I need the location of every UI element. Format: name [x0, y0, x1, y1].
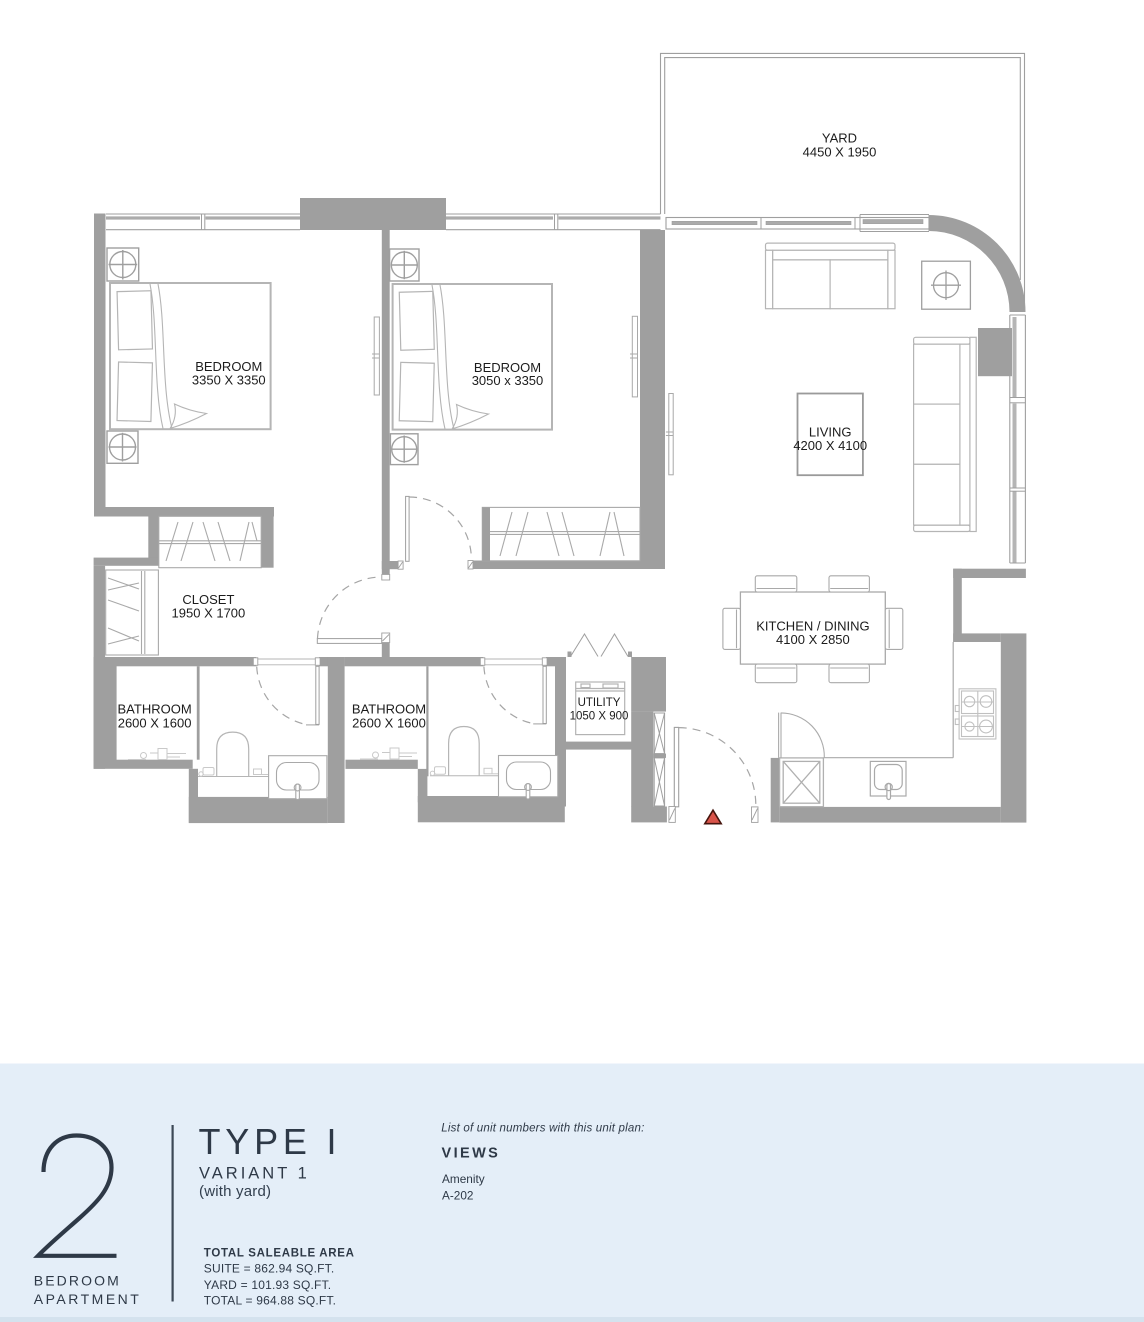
svg-text:1050 X 900: 1050 X 900 — [570, 711, 629, 723]
svg-text:TOTAL SALEABLE AREA: TOTAL SALEABLE AREA — [204, 1248, 355, 1260]
svg-text:3350 X 3350: 3350 X 3350 — [192, 373, 266, 388]
svg-text:4100 X 2850: 4100 X 2850 — [776, 632, 850, 647]
svg-text:SUITE = 862.94 SQ.FT.: SUITE = 862.94 SQ.FT. — [204, 1262, 335, 1276]
svg-text:BATHROOM: BATHROOM — [118, 701, 192, 716]
svg-text:2600 X 1600: 2600 X 1600 — [118, 715, 192, 730]
svg-text:List of unit numbers with this: List of unit numbers with this unit plan… — [441, 1123, 644, 1135]
svg-text:(with yard): (with yard) — [199, 1183, 271, 1200]
svg-text:BATHROOM: BATHROOM — [352, 702, 426, 717]
svg-text:4450 X 1950: 4450 X 1950 — [803, 145, 877, 160]
svg-text:VIEWS: VIEWS — [442, 1146, 501, 1162]
svg-text:2600 X 1600: 2600 X 1600 — [352, 716, 426, 731]
svg-text:VARIANT 1: VARIANT 1 — [199, 1165, 310, 1183]
svg-text:4200 X 4100: 4200 X 4100 — [793, 438, 867, 453]
svg-text:TOTAL = 964.88 SQ.FT.: TOTAL = 964.88 SQ.FT. — [204, 1294, 336, 1308]
svg-text:3050 x 3350: 3050 x 3350 — [472, 373, 544, 388]
svg-text:TYPE I: TYPE I — [199, 1121, 342, 1162]
svg-text:YARD: YARD — [822, 131, 857, 146]
svg-text:BEDROOM: BEDROOM — [34, 1273, 121, 1289]
svg-text:1950 X 1700: 1950 X 1700 — [172, 605, 246, 620]
svg-text:YARD = 101.93 SQ.FT.: YARD = 101.93 SQ.FT. — [204, 1278, 331, 1292]
svg-text:UTILITY: UTILITY — [578, 697, 621, 709]
svg-text:Amenity: Amenity — [442, 1172, 485, 1186]
svg-text:APARTMENT: APARTMENT — [34, 1291, 142, 1307]
svg-text:A-202: A-202 — [442, 1189, 473, 1203]
